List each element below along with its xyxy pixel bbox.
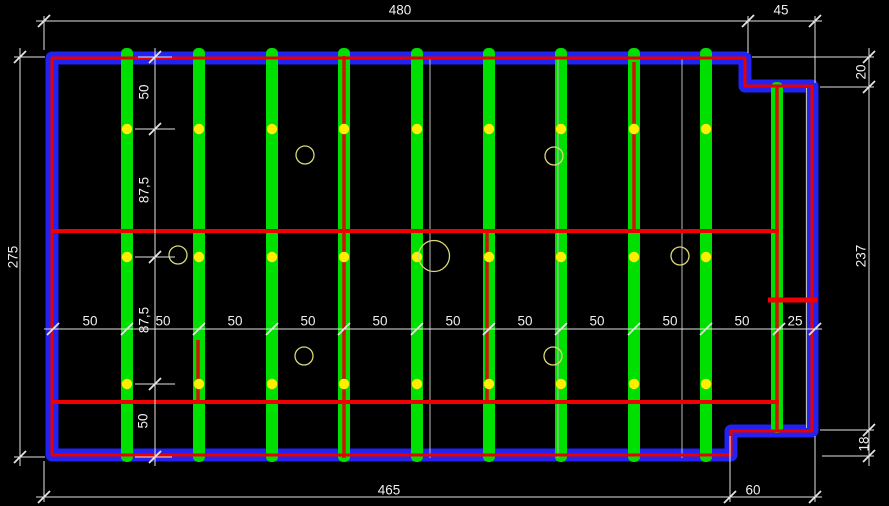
node-dot <box>484 379 494 389</box>
dimension-label: 50 <box>372 314 387 329</box>
node-dot <box>556 252 566 262</box>
node-dot <box>267 124 277 134</box>
node-dot <box>194 379 204 389</box>
node-dot <box>339 379 349 389</box>
node-dot <box>412 379 422 389</box>
node-dot <box>339 252 349 262</box>
node-dot <box>556 124 566 134</box>
node-dot <box>122 379 132 389</box>
dimension-label: 18 <box>857 436 872 451</box>
marker-circle <box>419 241 450 272</box>
node-dot <box>484 124 494 134</box>
dimension-label: 50 <box>155 314 170 329</box>
node-dot <box>412 124 422 134</box>
marker-circle <box>671 247 689 265</box>
node-dot <box>629 379 639 389</box>
dimension-label: 45 <box>773 3 788 18</box>
node-dot <box>122 252 132 262</box>
node-dot <box>701 252 711 262</box>
node-dot <box>267 252 277 262</box>
joist-strips <box>121 48 783 462</box>
node-dot <box>194 252 204 262</box>
dimension-label: 50 <box>227 314 242 329</box>
framing-plan-canvas: 480452752023718465605087,587,55050505050… <box>0 0 889 506</box>
node-dot <box>267 379 277 389</box>
cad-drawing-area: 480452752023718465605087,587,55050505050… <box>0 0 889 506</box>
node-dot <box>194 124 204 134</box>
dimension-label: 237 <box>854 245 869 268</box>
node-dot <box>701 124 711 134</box>
dimension-label: 50 <box>445 314 460 329</box>
dimension-label: 50 <box>517 314 532 329</box>
dimension-label: 87,5 <box>137 307 152 333</box>
marker-circle <box>169 246 187 264</box>
dimension-label: 50 <box>589 314 604 329</box>
dimension-label: 465 <box>378 483 401 498</box>
node-dot <box>339 124 349 134</box>
node-dot <box>701 379 711 389</box>
dimension-label: 20 <box>854 64 869 79</box>
marker-circle <box>296 146 314 164</box>
marker-circle <box>295 347 313 365</box>
dimension-label: 50 <box>136 413 151 428</box>
dimension-label: 87,5 <box>137 177 152 203</box>
node-dot <box>412 252 422 262</box>
dimension-label: 50 <box>734 314 749 329</box>
dimension-label: 480 <box>389 3 412 18</box>
dimension-label: 50 <box>82 314 97 329</box>
node-dot <box>629 252 639 262</box>
dimension-label: 50 <box>137 84 152 99</box>
dimension-label: 25 <box>787 314 802 329</box>
dimension-label: 50 <box>662 314 677 329</box>
node-dot <box>484 252 494 262</box>
node-dot <box>629 124 639 134</box>
dimension-label: 275 <box>6 246 21 269</box>
dimension-label: 60 <box>745 483 760 498</box>
marker-circles <box>169 146 689 365</box>
node-dot <box>556 379 566 389</box>
dimension-label: 50 <box>300 314 315 329</box>
node-dot <box>122 124 132 134</box>
